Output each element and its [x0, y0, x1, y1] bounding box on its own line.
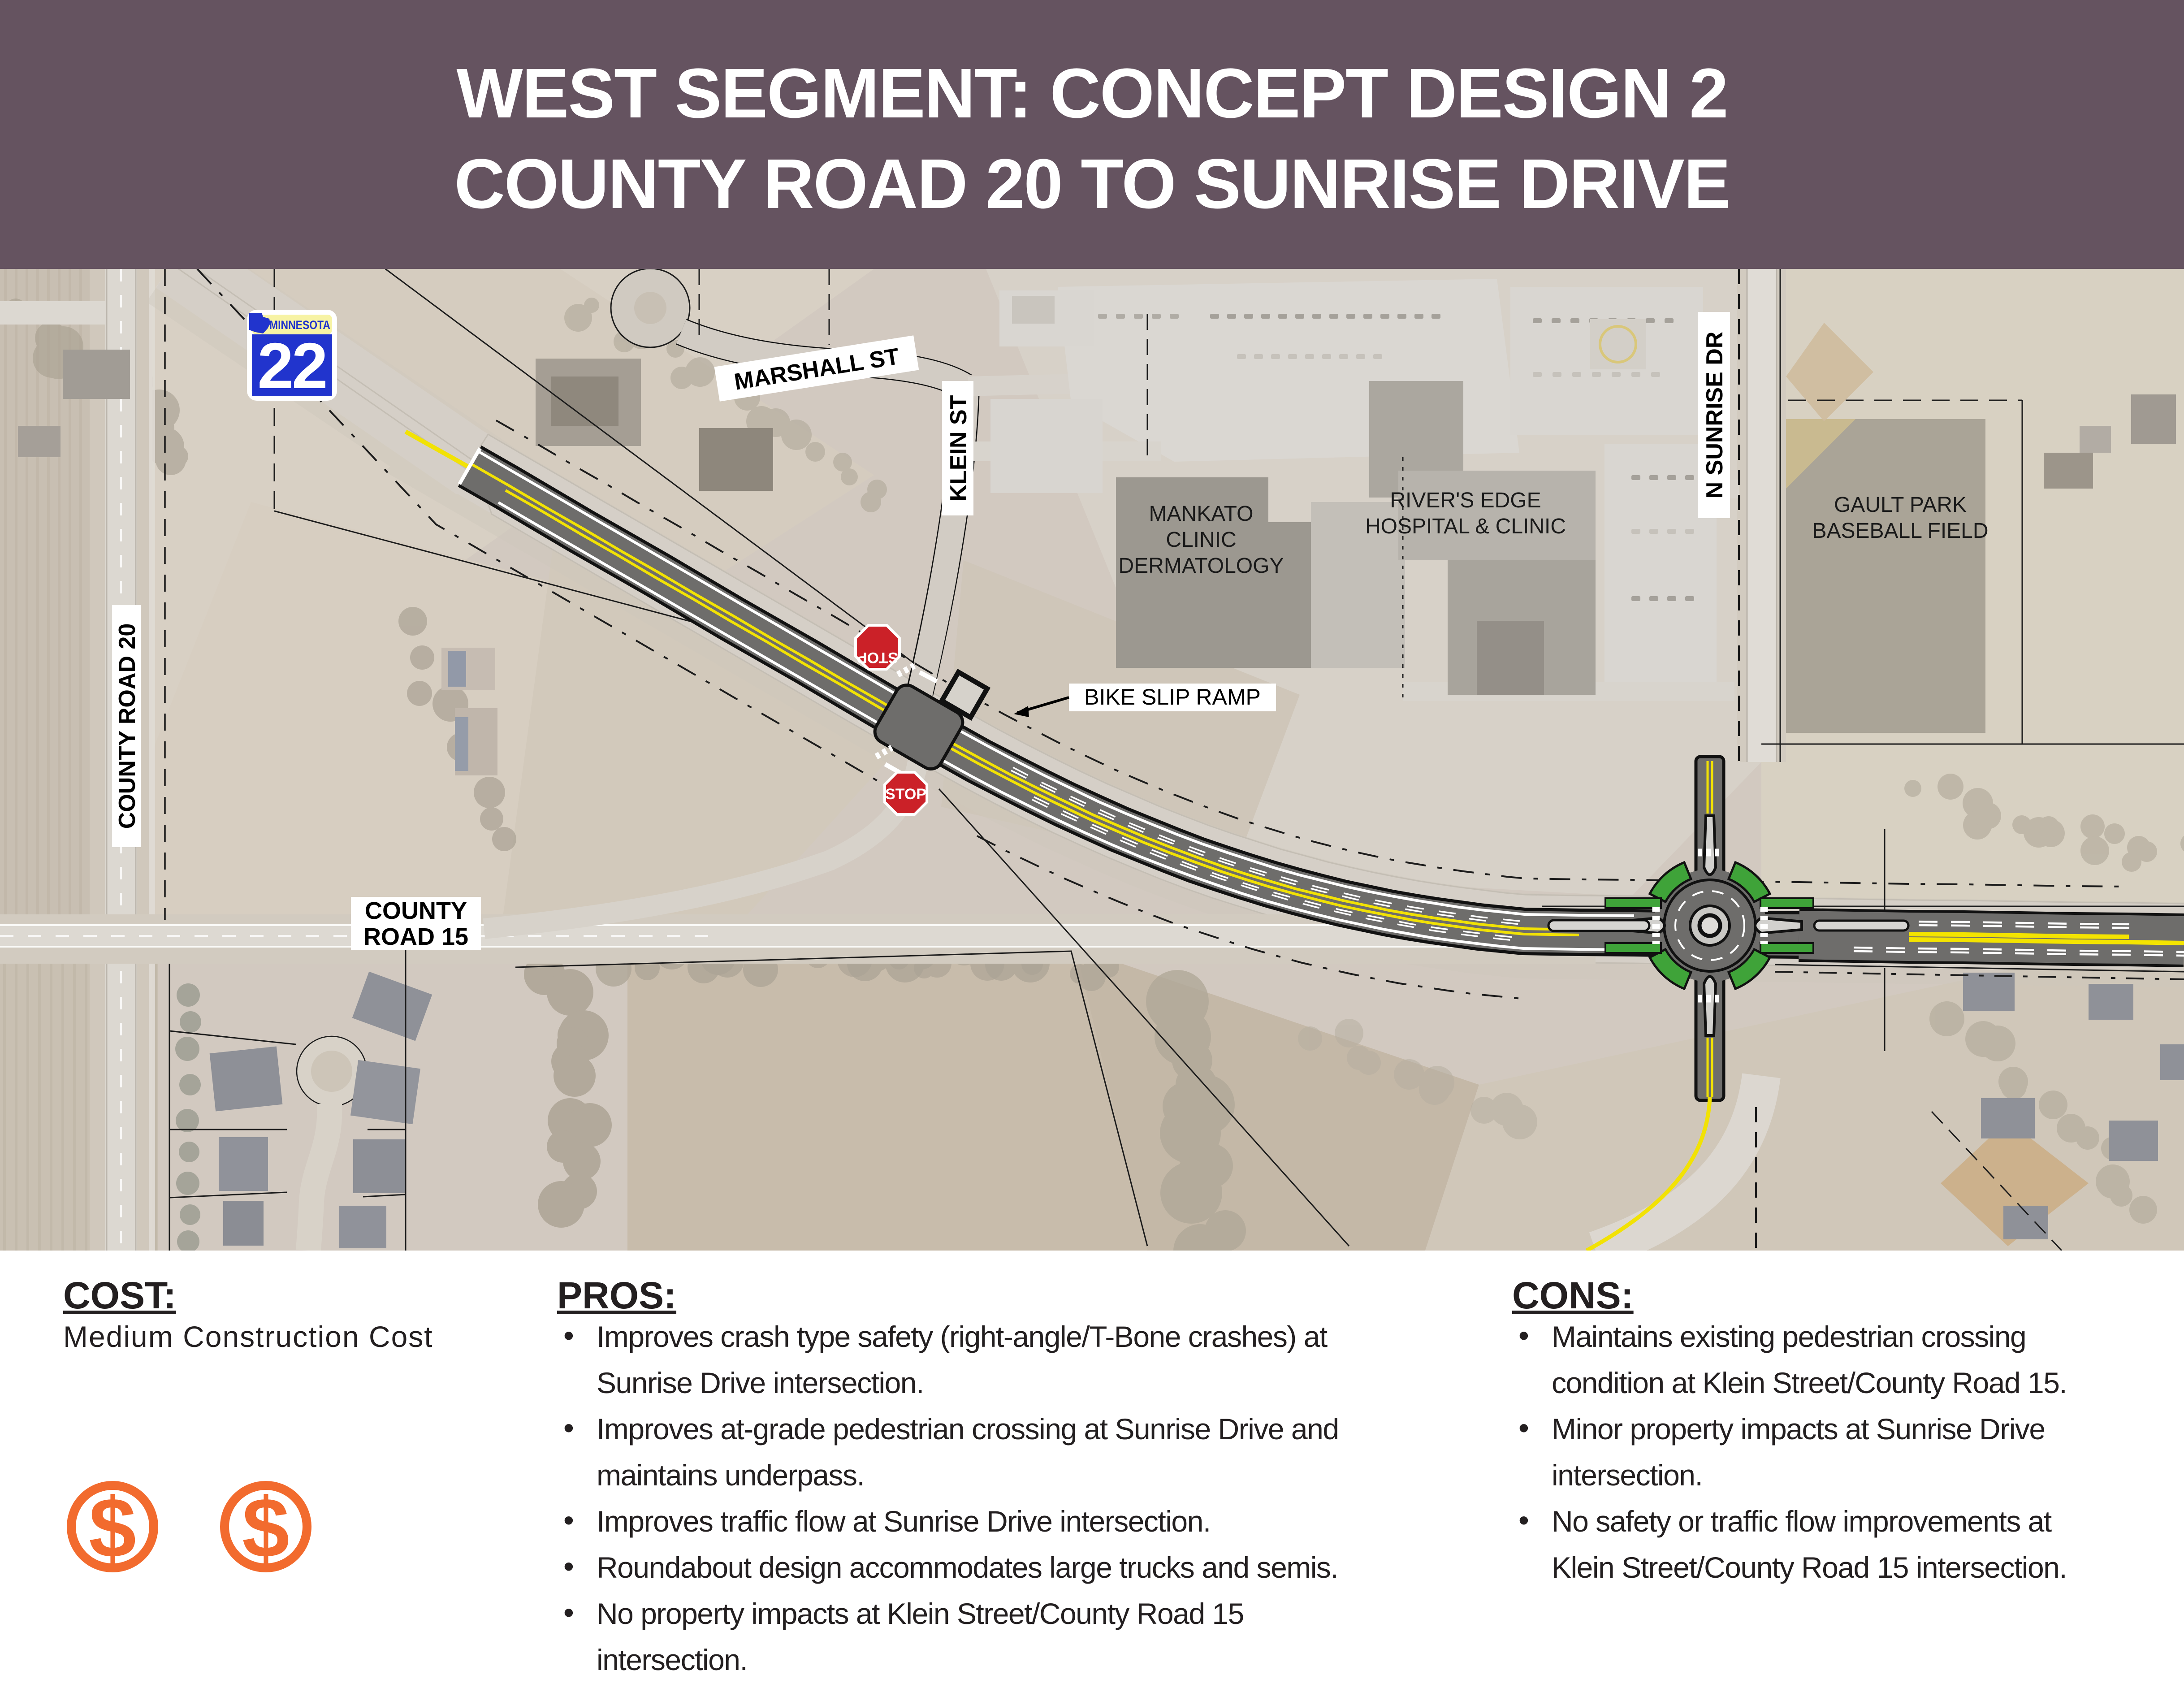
svg-text:$: $	[89, 1480, 136, 1575]
svg-text:COUNTY ROAD 20: COUNTY ROAD 20	[114, 623, 140, 829]
svg-text:ROAD 15: ROAD 15	[363, 923, 468, 950]
svg-text:DERMATOLOGY: DERMATOLOGY	[1119, 554, 1284, 578]
svg-text:BASEBALL FIELD: BASEBALL FIELD	[1812, 519, 1988, 543]
svg-text:$: $	[242, 1480, 290, 1575]
svg-text:GAULT PARK: GAULT PARK	[1834, 493, 1967, 517]
svg-text:CLINIC: CLINIC	[1166, 528, 1236, 552]
svg-text:HOSPITAL & CLINIC: HOSPITAL & CLINIC	[1365, 515, 1566, 538]
svg-text:STOP: STOP	[885, 786, 926, 803]
svg-text:MANKATO: MANKATO	[1149, 502, 1254, 526]
svg-text:RIVER'S EDGE: RIVER'S EDGE	[1390, 489, 1541, 512]
svg-text:KLEIN ST: KLEIN ST	[946, 395, 972, 501]
svg-text:N SUNRISE DR: N SUNRISE DR	[1702, 332, 1728, 499]
svg-text:STOP: STOP	[857, 649, 898, 666]
svg-text:COUNTY: COUNTY	[365, 897, 467, 924]
svg-text:22: 22	[257, 329, 326, 402]
svg-text:BIKE SLIP RAMP: BIKE SLIP RAMP	[1084, 684, 1261, 710]
